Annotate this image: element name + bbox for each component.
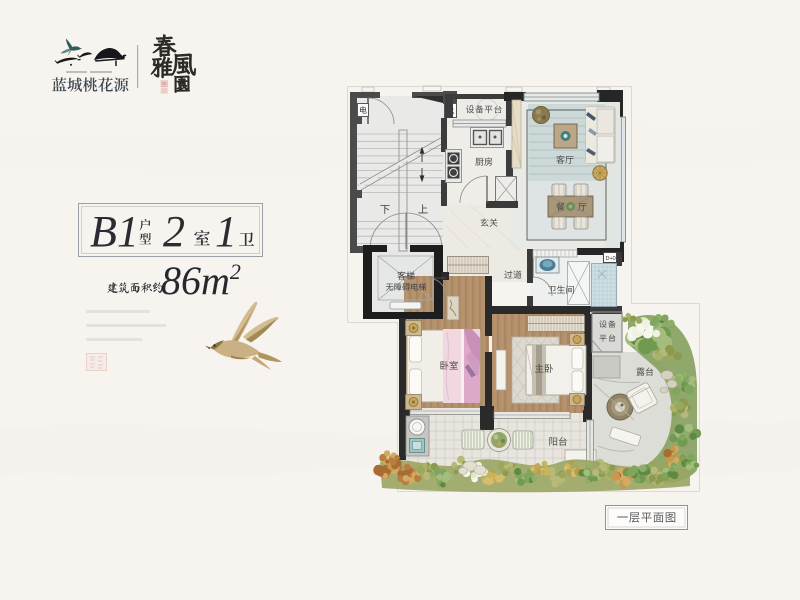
- svg-text:2: 2: [163, 207, 185, 256]
- svg-text:1: 1: [215, 207, 237, 256]
- svg-text:B1: B1: [90, 207, 139, 256]
- svg-text:86m2: 86m2: [161, 258, 241, 303]
- svg-text:D+0: D+0: [606, 256, 616, 262]
